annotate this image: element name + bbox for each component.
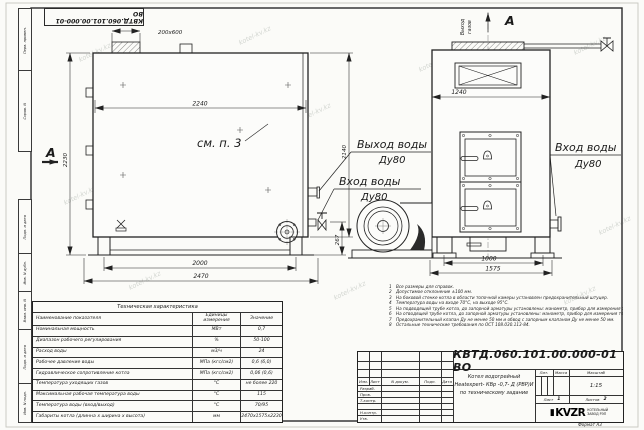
sig-row-utv: Утв. <box>358 415 383 422</box>
margin-label: Перв. примен. <box>23 27 27 54</box>
spec-col-header: Значение <box>240 312 282 325</box>
margin-cell-sprav-n: Справ. N <box>18 70 32 152</box>
margin-cell-vzam-inv: Взам. инв. N <box>18 291 32 331</box>
dim-2240: 2240 <box>192 101 207 108</box>
spec-cell: °С <box>192 400 240 411</box>
spec-cell: МПа (кгс/см2) <box>192 357 240 368</box>
sheet-label: Лист <box>544 397 554 402</box>
dim-2470: 2470 <box>193 273 208 280</box>
spec-cell: Номинальная мощность <box>33 325 192 336</box>
product-spec-ref: по техническому задание <box>453 389 535 397</box>
gas-outlet-label-1: Выход <box>460 18 466 35</box>
spec-col-header: Наименование показателя <box>33 312 192 325</box>
water-inlet-right-dn: Ду80 <box>574 159 601 170</box>
spec-cell: 24 <box>240 347 282 358</box>
spec-cell: Температура уходящих газов <box>33 379 192 390</box>
sheets-value: 2 <box>604 397 607 402</box>
drawing-sheet: kotel-kv.kz kotel-kv.kz kotel-kv.kz kote… <box>0 0 644 430</box>
margin-label: Инв. N дубл. <box>23 261 27 285</box>
svg-text:kotel-kv.kz: kotel-kv.kz <box>597 214 632 237</box>
gas-outlet-label-2: газов <box>468 20 473 34</box>
dim-opening: 200х600 <box>158 30 183 36</box>
margin-label: Справ. N <box>23 103 27 119</box>
spec-cell: 50-100 <box>240 336 282 347</box>
spec-cell: Габариты котла (длинна х ширина х высота… <box>33 411 192 422</box>
rev-col-podp: Подп. <box>419 377 441 385</box>
svg-text:kotel-kv.kz: kotel-kv.kz <box>237 24 272 47</box>
rev-col-data: Дата <box>441 377 453 385</box>
spec-cell: не более 220 <box>240 379 282 390</box>
spec-cell: МВт <box>192 325 240 336</box>
spec-cell: °С <box>192 379 240 390</box>
scale-value: 1:15 <box>569 376 623 395</box>
margin-cell-podp-data-1: Подп. и дата <box>18 199 32 255</box>
sheet-cell: Лист1 <box>535 395 569 403</box>
spec-cell: °С <box>192 390 240 401</box>
water-outlet-label: Выход воды <box>357 138 427 151</box>
see-note-label: см. п. 3 <box>197 136 241 150</box>
margin-label: Подп. и дата <box>23 345 27 369</box>
dim-1575: 1575 <box>485 266 500 273</box>
spec-cell: 70/95 <box>240 400 282 411</box>
spec-cell: Диапазон рабочего регулирования <box>33 336 192 347</box>
margin-label: Инв. N подл. <box>23 391 27 415</box>
margin-cell-inv-podl: Инв. N подл. <box>18 383 32 423</box>
company-name: КОТЕЛЬНЫЙ ЗАВОД РЭП <box>587 409 608 416</box>
water-inlet-dn: Ду80 <box>360 192 387 203</box>
spec-cell: 0,6 (6,0) <box>240 357 282 368</box>
spec-cell: Рабочее давление воды <box>33 357 192 368</box>
water-inlet-label: Вход воды <box>339 175 401 188</box>
sheet-value: 1 <box>557 397 560 402</box>
spec-cell: Максимальная рабочая температура воды <box>33 390 192 401</box>
spec-cell: 0,7 <box>240 325 282 336</box>
dim-267: 267 <box>335 234 341 245</box>
spec-cell: Расход воды <box>33 347 192 358</box>
product-model: Heatexpert- КВр -0,7- Д (РВР)И <box>453 381 535 389</box>
spec-cell: мм <box>192 411 240 422</box>
note-item: 8Остальные технические требования по ОСТ… <box>389 322 623 327</box>
water-inlet-right-label: Вход воды <box>555 141 617 154</box>
mass-label: Масса <box>553 369 569 376</box>
spec-cell: МПа (кгс/см2) <box>192 368 240 379</box>
technical-notes: 1Все размеры для справок. 2Допустимое от… <box>389 284 623 328</box>
svg-text:kotel-kv.kz: kotel-kv.kz <box>572 34 607 57</box>
spec-cell: Гидравлическое сопротивление котла <box>33 368 192 379</box>
spec-cell: 115 <box>240 390 282 401</box>
product-description: Котел водогрейный Heatexpert- КВр -0,7- … <box>453 369 535 426</box>
dim-1240: 1240 <box>451 89 466 96</box>
title-block: Изм. Лист N докум. Подп. Дата Разраб. Пр… <box>357 351 624 423</box>
format-note: Формат А3 <box>552 422 628 427</box>
margin-label: Подп. и дата <box>23 215 27 239</box>
scale-label: Масштаб <box>569 369 623 376</box>
sheets-label: Листов <box>585 397 599 402</box>
rev-col-izm: Изм. <box>358 377 369 385</box>
kvzr-logo: ▮KVZR <box>550 407 585 419</box>
svg-text:kotel-kv.kz: kotel-kv.kz <box>127 269 162 292</box>
dim-2230: 2230 <box>63 152 69 167</box>
spec-cell: 2470х1575х2230 <box>240 411 282 422</box>
view-mark-a: А <box>504 13 515 28</box>
logo-bars-icon: ▮ <box>550 408 554 418</box>
spec-cell: м3/ч <box>192 347 240 358</box>
doc-number-stamp: КВТД.060.101.00.000-01 ВО <box>44 8 144 26</box>
spec-cell: % <box>192 336 240 347</box>
margin-cell-inv-dubl: Инв. N дубл. <box>18 253 32 293</box>
logo-text: KVZR <box>555 407 585 419</box>
lit-label: Лит. <box>535 369 553 376</box>
dim-2000: 2000 <box>192 260 207 267</box>
spec-cell: 0,06 (0,6) <box>240 368 282 379</box>
spec-table: Техническая характеристика Наименование … <box>32 301 283 423</box>
rev-col-doc: N докум. <box>381 377 419 385</box>
rev-col-list: Лист <box>369 377 381 385</box>
company-line-2: ЗАВОД РЭП <box>587 413 608 417</box>
sheets-cell: Листов2 <box>569 395 623 403</box>
title-block-doc-number: КВТД.060.101.00.000-01 ВО <box>453 352 623 369</box>
section-mark-a: А <box>45 145 56 160</box>
product-name: Котел водогрейный <box>453 373 535 381</box>
dim-1000: 1000 <box>481 256 496 263</box>
water-outlet-dn: Ду80 <box>378 155 405 166</box>
margin-cell-perv-primen: Перв. примен. <box>18 8 32 72</box>
company-cell: ▮KVZR КОТЕЛЬНЫЙ ЗАВОД РЭП <box>535 403 623 422</box>
svg-text:kotel-kv.kz: kotel-kv.kz <box>332 279 367 302</box>
spec-table-title: Техническая характеристика <box>33 302 282 312</box>
margin-label: Взам. инв. N <box>23 299 27 322</box>
spec-col-header: Единицы измерения <box>192 312 240 325</box>
margin-cell-podp-data-2: Подп. и дата <box>18 329 32 385</box>
spec-cell: Температура воды (вход/выход) <box>33 400 192 411</box>
